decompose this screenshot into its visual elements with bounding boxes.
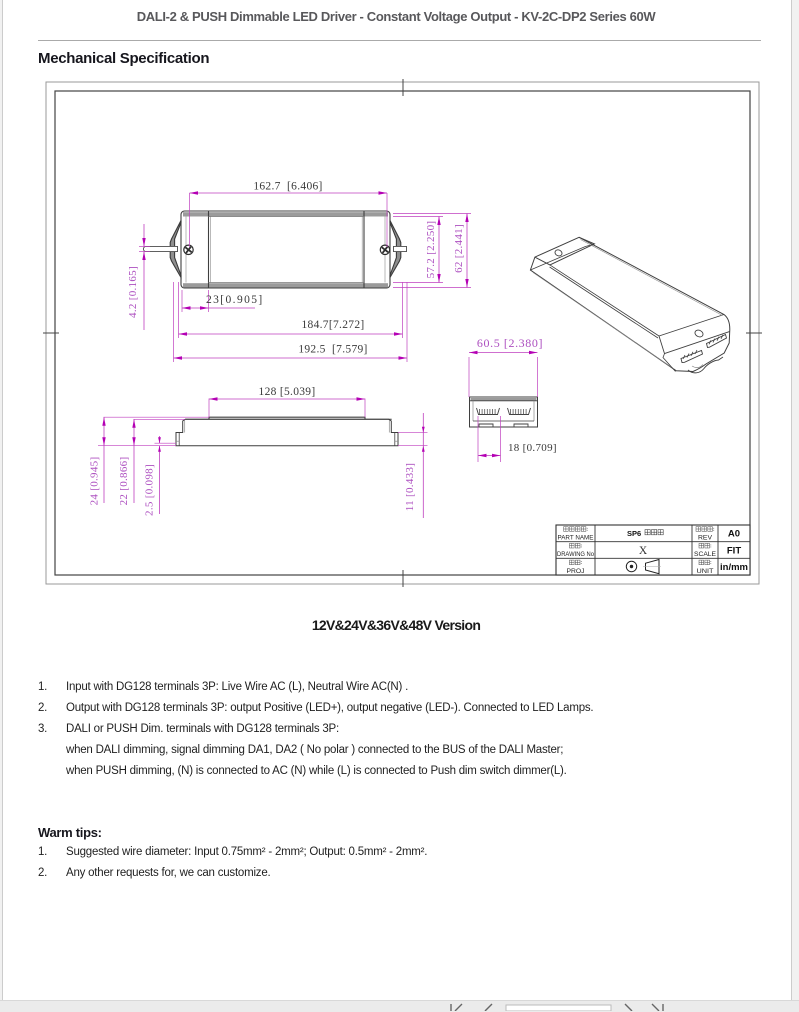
svg-text:192.5 [7.579]: 192.5 [7.579]: [298, 344, 367, 356]
svg-text:in/mm: in/mm: [720, 562, 748, 573]
svg-text:162.7 [6.406]: 162.7 [6.406]: [253, 181, 322, 193]
svg-text:24 [0.945]: 24 [0.945]: [89, 457, 101, 506]
svg-text:18 [0.709]: 18 [0.709]: [508, 442, 557, 454]
svg-text:UNIT: UNIT: [697, 568, 714, 575]
svg-text:23[0.905]: 23[0.905]: [206, 294, 264, 306]
svg-text:FIT: FIT: [727, 546, 741, 557]
svg-text:X: X: [639, 545, 648, 557]
svg-text:60.5 [2.380]: 60.5 [2.380]: [477, 336, 543, 350]
svg-text:2.5 [0.098]: 2.5 [0.098]: [144, 464, 156, 516]
svg-text:A0: A0: [728, 529, 740, 540]
svg-text:11 [0.433]: 11 [0.433]: [404, 463, 416, 511]
svg-text:184.7[7.272]: 184.7[7.272]: [301, 319, 364, 331]
svg-text:22 [0.866]: 22 [0.866]: [118, 457, 130, 506]
svg-text:DRAWING No: DRAWING No: [557, 551, 594, 558]
svg-text:57.2 [2.250]: 57.2 [2.250]: [425, 221, 437, 279]
svg-text:PART NAME: PART NAME: [558, 535, 595, 542]
svg-text:4.2 [0.165]: 4.2 [0.165]: [127, 266, 139, 318]
svg-text:PROJ: PROJ: [567, 568, 585, 575]
svg-text:62 [2.441]: 62 [2.441]: [453, 224, 465, 273]
svg-text:SP6: SP6: [627, 529, 641, 538]
svg-text:SCALE: SCALE: [694, 551, 717, 558]
svg-text:REV: REV: [698, 535, 713, 542]
svg-text:128 [5.039]: 128 [5.039]: [259, 386, 316, 398]
